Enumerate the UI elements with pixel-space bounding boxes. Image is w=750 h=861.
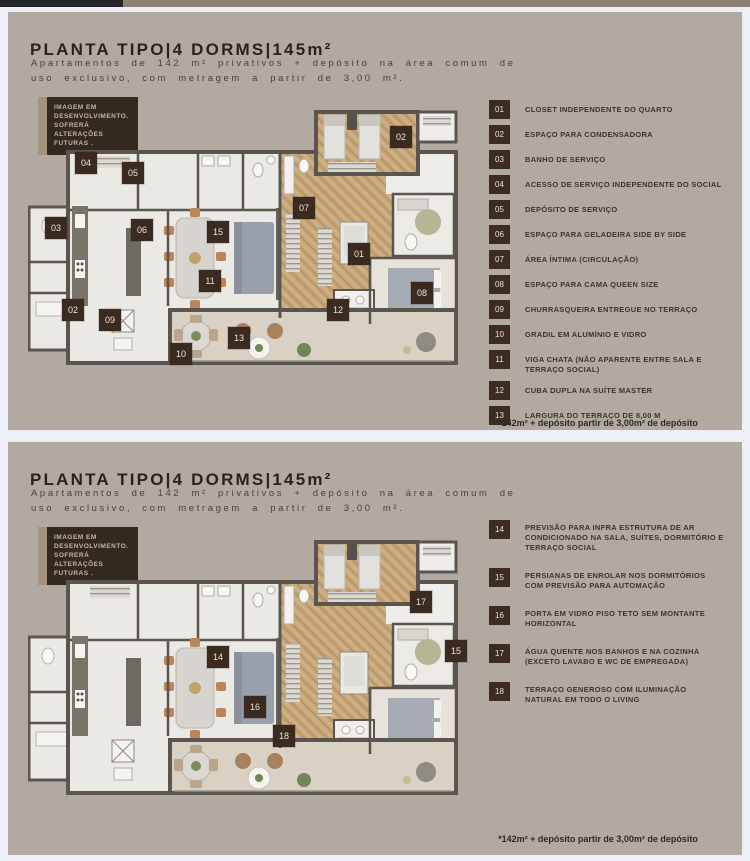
floorplan-panel: PLANTA TIPO|4 DORMS|145m² Apartamentos d… [8,12,742,430]
legend-label: CUBA DUPLA NA SUÍTE MASTER [525,381,652,396]
legend-label: ÁGUA QUENTE NOS BANHOS E NA COZINHA (EXC… [525,644,725,667]
legend-label: BANHO DE SERVIÇO [525,150,606,165]
legend-label: ESPAÇO PARA CAMA QUEEN SIZE [525,275,659,290]
floorplan-panel: PLANTA TIPO|4 DORMS|145m² Apartamentos d… [8,442,742,855]
plan-marker-12: 12 [327,299,349,321]
footnote: *142m² + depósito partir de 3,00m² de de… [478,834,718,844]
legend-label: GRADIL EM ALUMÍNIO E VIDRO [525,325,647,340]
legend-item-09: 09CHURRASQUEIRA ENTREGUE NO TERRAÇO [489,300,737,319]
floor-plan-image: 040502030615070111080209121310 [28,110,480,400]
plan-marker-03: 03 [45,217,67,239]
plan-marker-08: 08 [411,282,433,304]
plan-marker-09: 09 [99,309,121,331]
legend-number-box: 02 [489,125,510,144]
legend-label: ESPAÇO PARA CONDENSADORA [525,125,653,140]
floor-plan-image: 1714151618 [28,540,480,830]
legend-number-box: 05 [489,200,510,219]
plan-marker-14: 14 [207,646,229,668]
legend-number-box: 17 [489,644,510,663]
legend-label: PORTA EM VIDRO PISO TETO SEM MONTANTE HO… [525,606,725,629]
legend-label: VIGA CHATA (NÃO APARENTE ENTRE SALA E TE… [525,350,725,375]
legend-label: CHURRASQUEIRA ENTREGUE NO TERRAÇO [525,300,698,315]
plan-marker-02: 02 [390,126,412,148]
legend-item-12: 12CUBA DUPLA NA SUÍTE MASTER [489,381,737,400]
legend-number-box: 16 [489,606,510,625]
plan-marker-15: 15 [445,640,467,662]
page-subtitle: Apartamentos de 142 m² privativos + depó… [31,486,516,516]
legend-item-16: 16PORTA EM VIDRO PISO TETO SEM MONTANTE … [489,606,737,629]
legend-item-10: 10GRADIL EM ALUMÍNIO E VIDRO [489,325,737,344]
legend-number-box: 07 [489,250,510,269]
legend-item-02: 02ESPAÇO PARA CONDENSADORA [489,125,737,144]
top-bar [0,0,750,7]
legend-number-box: 01 [489,100,510,119]
legend-number-box: 10 [489,325,510,344]
legend-item-03: 03BANHO DE SERVIÇO [489,150,737,169]
plan-marker-13: 13 [228,327,250,349]
legend-number-box: 18 [489,682,510,701]
legend-label: TERRAÇO GENEROSO COM ILUMINAÇÃO NATURAL … [525,682,725,705]
plan-marker-01: 01 [348,243,370,265]
legend-label: ESPAÇO PARA GELADEIRA SIDE BY SIDE [525,225,686,240]
legend-item-11: 11VIGA CHATA (NÃO APARENTE ENTRE SALA E … [489,350,737,375]
legend-item-17: 17ÁGUA QUENTE NOS BANHOS E NA COZINHA (E… [489,644,737,667]
legend-label: PREVISÃO PARA INFRA ESTRUTURA DE AR COND… [525,520,725,553]
legend-number-box: 14 [489,520,510,539]
plan-marker-18: 18 [273,725,295,747]
legend-number-box: 15 [489,568,510,587]
legend-list: 01CLOSET INDEPENDENTE DO QUARTO02ESPAÇO … [489,100,737,425]
legend-number-box: 09 [489,300,510,319]
floor-plan-drawing [28,540,480,830]
legend-item-14: 14PREVISÃO PARA INFRA ESTRUTURA DE AR CO… [489,520,737,553]
legend-item-18: 18TERRAÇO GENEROSO COM ILUMINAÇÃO NATURA… [489,682,737,705]
legend-item-04: 04ACESSO DE SERVIÇO INDEPENDENTE DO SOCI… [489,175,737,194]
legend-number-box: 12 [489,381,510,400]
legend-label: ÁREA ÍNTIMA (CIRCULAÇÃO) [525,250,638,265]
brochure-page: PLANTA TIPO|4 DORMS|145m² Apartamentos d… [0,0,750,861]
plan-marker-02: 02 [62,299,84,321]
plan-marker-11: 11 [199,270,221,292]
plan-marker-05: 05 [122,162,144,184]
legend-number-box: 04 [489,175,510,194]
plan-marker-06: 06 [131,219,153,241]
legend-number-box: 08 [489,275,510,294]
legend-item-06: 06ESPAÇO PARA GELADEIRA SIDE BY SIDE [489,225,737,244]
legend-item-15: 15PERSIANAS DE ENROLAR NOS DORMITÓRIOS C… [489,568,737,591]
page-subtitle: Apartamentos de 142 m² privativos + depó… [31,56,516,86]
plan-marker-15: 15 [207,221,229,243]
legend-item-05: 05DEPÓSITO DE SERVIÇO [489,200,737,219]
legend-number-box: 11 [489,350,510,369]
top-bar-dark-segment [0,0,123,7]
plan-marker-07: 07 [293,197,315,219]
legend-list: 14PREVISÃO PARA INFRA ESTRUTURA DE AR CO… [489,520,737,705]
legend-label: PERSIANAS DE ENROLAR NOS DORMITÓRIOS COM… [525,568,725,591]
legend-number-box: 03 [489,150,510,169]
plan-marker-10: 10 [170,343,192,365]
legend-number-box: 06 [489,225,510,244]
legend-label: CLOSET INDEPENDENTE DO QUARTO [525,100,673,115]
legend-item-07: 07ÁREA ÍNTIMA (CIRCULAÇÃO) [489,250,737,269]
legend-label: ACESSO DE SERVIÇO INDEPENDENTE DO SOCIAL [525,175,721,190]
plan-marker-04: 04 [75,152,97,174]
plan-marker-16: 16 [244,696,266,718]
legend-item-08: 08ESPAÇO PARA CAMA QUEEN SIZE [489,275,737,294]
legend-item-01: 01CLOSET INDEPENDENTE DO QUARTO [489,100,737,119]
plan-marker-17: 17 [410,591,432,613]
legend-label: DEPÓSITO DE SERVIÇO [525,200,618,215]
footnote: *142m² + depósito partir de 3,00m² de de… [478,418,718,428]
